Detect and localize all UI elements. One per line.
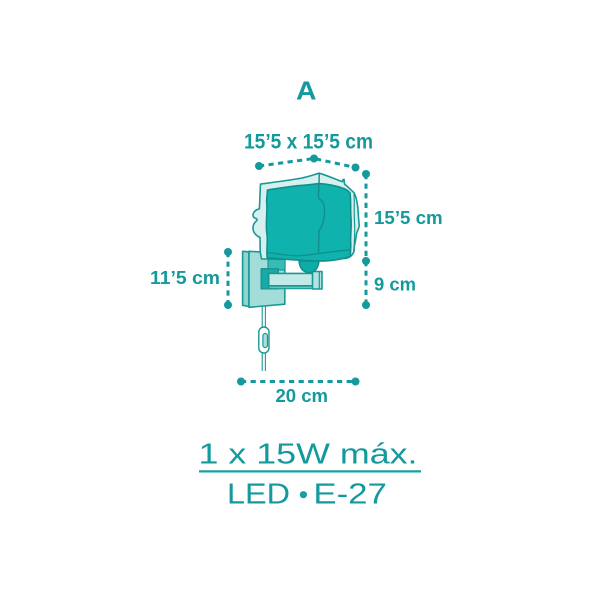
- svg-text:9 cm: 9 cm: [374, 275, 416, 295]
- svg-text:11’5 cm: 11’5 cm: [150, 268, 220, 288]
- svg-text:15’5 x 15’5 cm: 15’5 x 15’5 cm: [244, 130, 373, 153]
- svg-text:A: A: [296, 77, 317, 105]
- svg-text:E-27: E-27: [313, 479, 387, 511]
- svg-text:20 cm: 20 cm: [276, 386, 329, 406]
- svg-text:15’5 cm: 15’5 cm: [374, 208, 443, 228]
- svg-text:LED: LED: [227, 479, 290, 511]
- svg-text:1 x 15W máx.: 1 x 15W máx.: [199, 439, 418, 471]
